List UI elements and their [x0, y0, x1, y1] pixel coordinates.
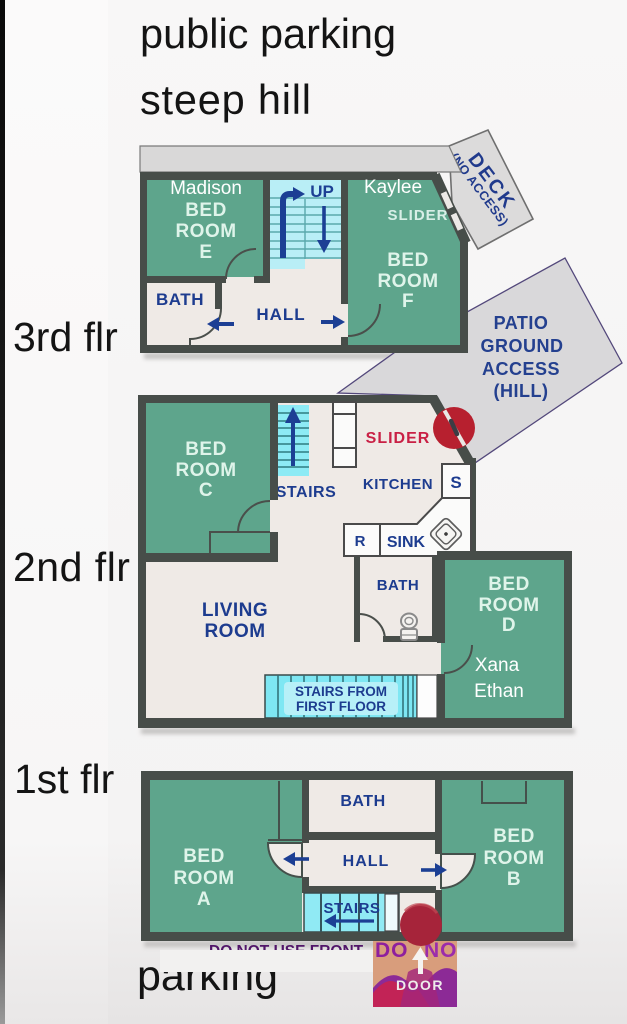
svg-text:public parking: public parking [140, 10, 396, 57]
svg-text:HALL: HALL [343, 853, 390, 870]
svg-text:STAIRS: STAIRS [276, 484, 336, 501]
svg-text:KITCHEN: KITCHEN [363, 476, 433, 493]
svg-text:GROUND: GROUND [481, 336, 564, 356]
svg-text:Xana: Xana [475, 655, 520, 676]
svg-text:ROOM: ROOM [377, 271, 438, 292]
svg-text:UP: UP [310, 182, 334, 201]
svg-text:steep hill: steep hill [140, 76, 312, 123]
svg-text:C: C [199, 480, 213, 501]
svg-text:1st flr: 1st flr [14, 756, 114, 802]
svg-text:FIRST FLOOR: FIRST FLOOR [296, 699, 386, 714]
svg-text:BATH: BATH [156, 290, 204, 309]
svg-text:ROOM: ROOM [173, 868, 234, 889]
svg-text:ROOM: ROOM [483, 848, 544, 869]
svg-text:R: R [355, 533, 366, 550]
svg-text:BED: BED [387, 250, 429, 271]
svg-text:ROOM: ROOM [175, 221, 236, 242]
svg-text:Kaylee: Kaylee [364, 177, 422, 198]
svg-text:(HILL): (HILL) [494, 381, 549, 401]
svg-text:ACCESS: ACCESS [482, 359, 560, 379]
svg-text:BED: BED [493, 826, 535, 847]
svg-text:SLIDER: SLIDER [387, 207, 448, 224]
svg-text:E: E [199, 242, 212, 263]
svg-text:3rd flr: 3rd flr [13, 314, 118, 360]
svg-text:2nd flr: 2nd flr [13, 544, 130, 590]
svg-text:A: A [197, 889, 211, 910]
svg-text:SLIDER: SLIDER [366, 430, 431, 447]
svg-text:SINK: SINK [387, 534, 426, 551]
svg-text:BED: BED [185, 439, 227, 460]
svg-text:BATH: BATH [340, 793, 385, 810]
svg-text:DO: DO [375, 939, 409, 962]
svg-text:DOOR: DOOR [396, 977, 444, 993]
svg-text:ROOM: ROOM [478, 595, 539, 616]
svg-text:PATIO: PATIO [494, 313, 549, 333]
svg-text:STAIRS FROM: STAIRS FROM [295, 684, 387, 699]
svg-text:BED: BED [185, 200, 227, 221]
svg-text:Madison: Madison [170, 178, 242, 199]
svg-text:LIVING: LIVING [202, 600, 268, 621]
svg-text:ROOM: ROOM [175, 460, 236, 481]
svg-text:STAIRS: STAIRS [324, 900, 381, 917]
svg-text:HALL: HALL [256, 305, 305, 324]
svg-text:BED: BED [183, 846, 225, 867]
svg-text:B: B [507, 869, 521, 890]
svg-text:BED: BED [488, 574, 530, 595]
svg-text:BATH: BATH [377, 577, 420, 594]
svg-text:D: D [502, 615, 516, 636]
svg-text:ROOM: ROOM [204, 621, 265, 642]
svg-text:Ethan: Ethan [474, 681, 524, 702]
svg-text:S: S [450, 473, 461, 492]
svg-text:F: F [402, 291, 414, 312]
